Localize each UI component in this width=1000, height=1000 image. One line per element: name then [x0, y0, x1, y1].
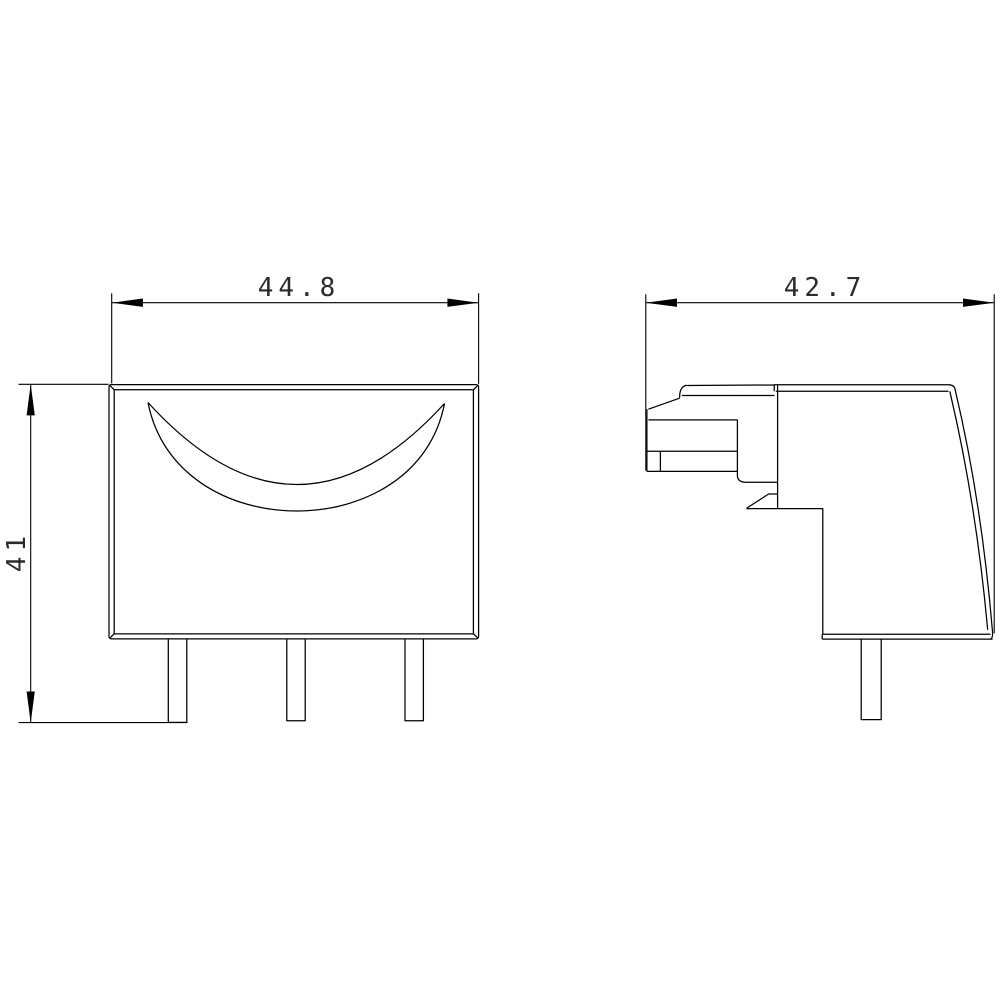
- side-cap-seam: [774, 385, 777, 509]
- dim-front-width-label: 44.8: [258, 273, 341, 303]
- dim-front-height-label: 41: [2, 531, 32, 572]
- front-inner-frame: [114, 390, 473, 634]
- dim-side-width: 42.7: [646, 273, 994, 633]
- dim-front-height-arrow-top: [27, 384, 35, 415]
- side-latch-tooth: [746, 494, 777, 508]
- dim-front-height: 41: [2, 384, 187, 722]
- dim-side-width-arrow-left: [646, 299, 677, 307]
- side-flange-block: [647, 398, 738, 471]
- dim-side-width-label: 42.7: [784, 273, 867, 303]
- front-pins: [168, 639, 423, 722]
- dimension-drawing-canvas: 44.8 41 42.7: [0, 0, 1000, 1000]
- side-pin: [861, 639, 881, 719]
- side-view: [647, 385, 993, 720]
- front-recess-arc: [148, 403, 445, 512]
- dim-front-width: 44.8: [112, 273, 479, 384]
- side-rear-inner: [950, 391, 988, 630]
- side-base-plate: [822, 634, 992, 639]
- side-lower-ledge: [746, 509, 822, 634]
- front-outer-frame: [109, 385, 479, 639]
- dim-side-width-arrow-right: [963, 299, 994, 307]
- dim-front-width-extensions: [112, 293, 479, 384]
- front-corner-chamfers: [110, 385, 478, 638]
- side-top-and-rear-outer: [774, 385, 993, 639]
- dim-front-width-arrow-right: [447, 299, 478, 307]
- front-view: [109, 385, 479, 723]
- dim-front-height-extensions: [19, 384, 188, 722]
- dim-front-width-arrow-left: [112, 299, 143, 307]
- technical-drawing: 44.8 41 42.7: [0, 0, 1000, 1000]
- side-latch-pocket: [737, 420, 777, 482]
- dim-front-height-arrow-bottom: [27, 692, 35, 723]
- dim-side-width-extensions: [646, 294, 994, 633]
